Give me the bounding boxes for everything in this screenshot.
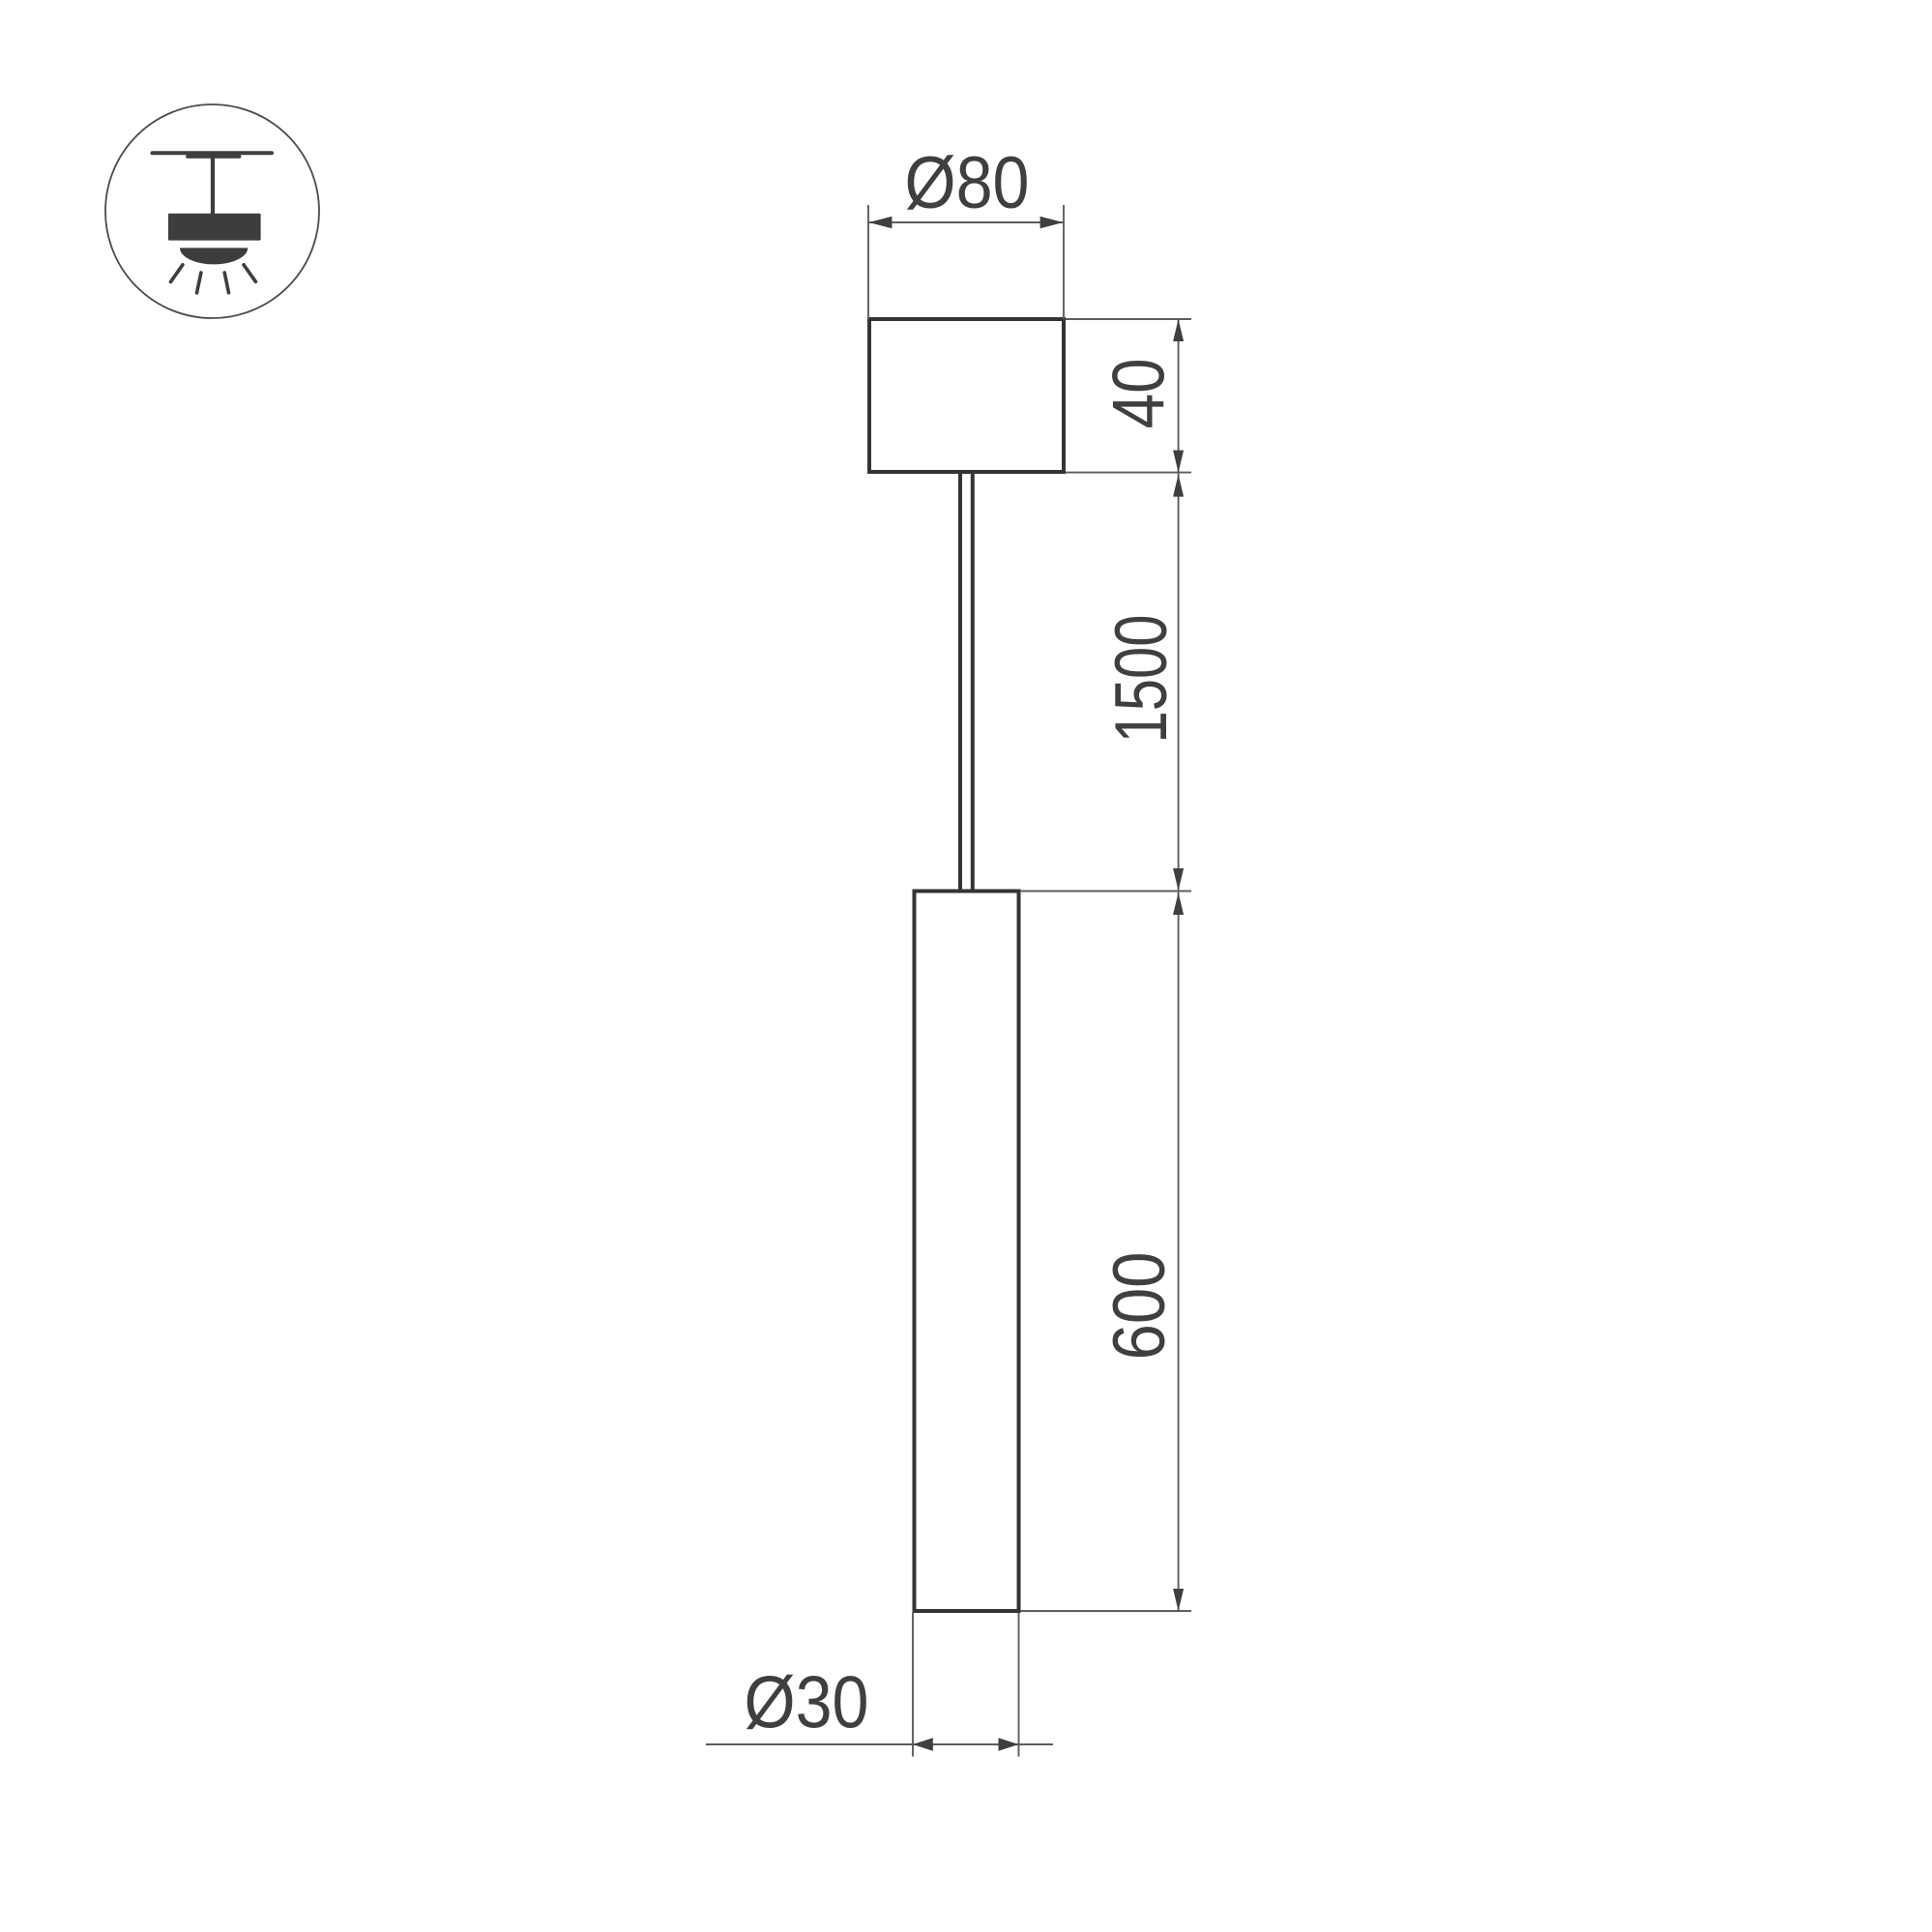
svg-text:Ø80: Ø80 — [905, 142, 1030, 224]
svg-text:600: 600 — [1098, 1252, 1181, 1361]
svg-text:Ø30: Ø30 — [745, 1662, 869, 1744]
svg-text:40: 40 — [1098, 358, 1181, 428]
svg-text:1500: 1500 — [1100, 615, 1183, 744]
